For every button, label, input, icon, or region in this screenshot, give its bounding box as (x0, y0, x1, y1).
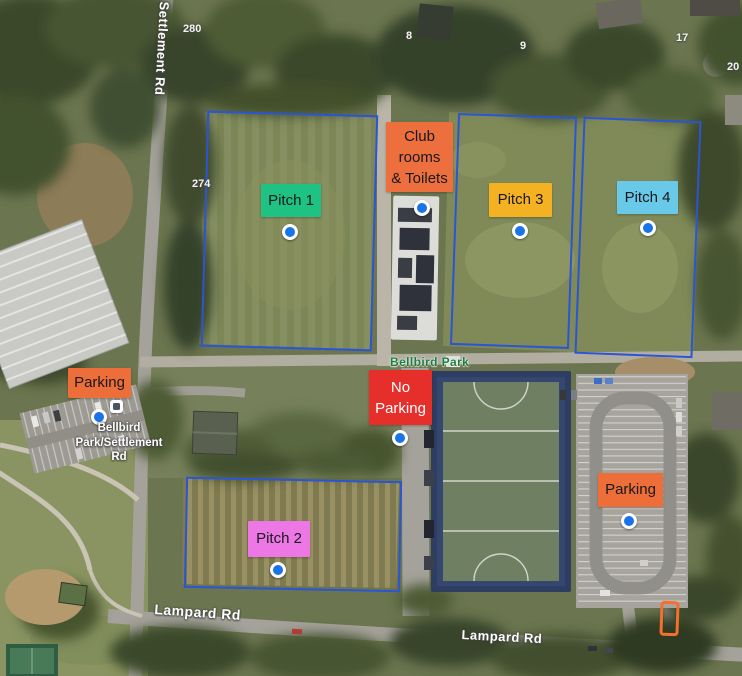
house-number-17: 17 (676, 32, 688, 44)
pin-parking-east[interactable] (621, 513, 637, 529)
pin-pitch-1[interactable] (282, 224, 298, 240)
pitch-1-label-text: Pitch 1 (268, 191, 314, 211)
no-parking-label-line1: No (391, 377, 410, 398)
parking-west-label[interactable]: Parking (68, 368, 131, 398)
pin-club-rooms[interactable] (414, 200, 430, 216)
no-parking-label[interactable]: No Parking (369, 370, 432, 425)
club-rooms-label-line1: Club (404, 126, 435, 147)
parking-east-label-text: Parking (605, 480, 656, 500)
bus-stop-label-line2: Park/Settlement (58, 436, 180, 451)
pitch-2-label-text: Pitch 2 (256, 529, 302, 549)
no-parking-label-line2: Parking (375, 398, 426, 419)
house-number-8: 8 (406, 30, 412, 42)
pin-pitch-4[interactable] (640, 220, 656, 236)
parking-east-label[interactable]: Parking (598, 473, 663, 507)
pitch-4-label-text: Pitch 4 (625, 188, 671, 208)
bus-stop-label-line3: Rd (58, 450, 180, 465)
pitch-3-label[interactable]: Pitch 3 (489, 183, 552, 217)
bus-stop-icon[interactable] (110, 400, 123, 413)
house-number-9: 9 (520, 40, 526, 52)
pitch-3-label-text: Pitch 3 (498, 190, 544, 210)
hockey-turf (424, 355, 571, 608)
club-rooms-label-line3: & Toilets (391, 168, 447, 189)
pitch-2-label[interactable]: Pitch 2 (248, 521, 310, 557)
pitch-1-label[interactable]: Pitch 1 (261, 184, 321, 217)
club-rooms-label-line2: rooms (399, 147, 441, 168)
pitch-4-outline[interactable] (574, 117, 701, 358)
parking-west-label-text: Parking (74, 373, 125, 393)
bus-stop-label-line1: Bellbird (58, 421, 180, 436)
driveway-highlight-box[interactable] (659, 601, 679, 637)
bus-glyph (113, 403, 120, 410)
bus-stop-label: Bellbird Park/Settlement Rd (58, 421, 180, 465)
club-rooms-label[interactable]: Club rooms & Toilets (386, 122, 453, 192)
pin-no-parking[interactable] (392, 430, 408, 446)
house-number-280: 280 (183, 23, 201, 35)
pitch-4-label[interactable]: Pitch 4 (617, 181, 678, 214)
house-number-20: 20 (727, 61, 739, 73)
satellite-map[interactable]: Pitch 1 Club rooms & Toilets Pitch 3 Pit… (0, 0, 742, 676)
pin-pitch-2[interactable] (270, 562, 286, 578)
pin-pitch-3[interactable] (512, 223, 528, 239)
house-number-274: 274 (192, 178, 210, 190)
park-name-label[interactable]: Bellbird Park (390, 355, 469, 369)
